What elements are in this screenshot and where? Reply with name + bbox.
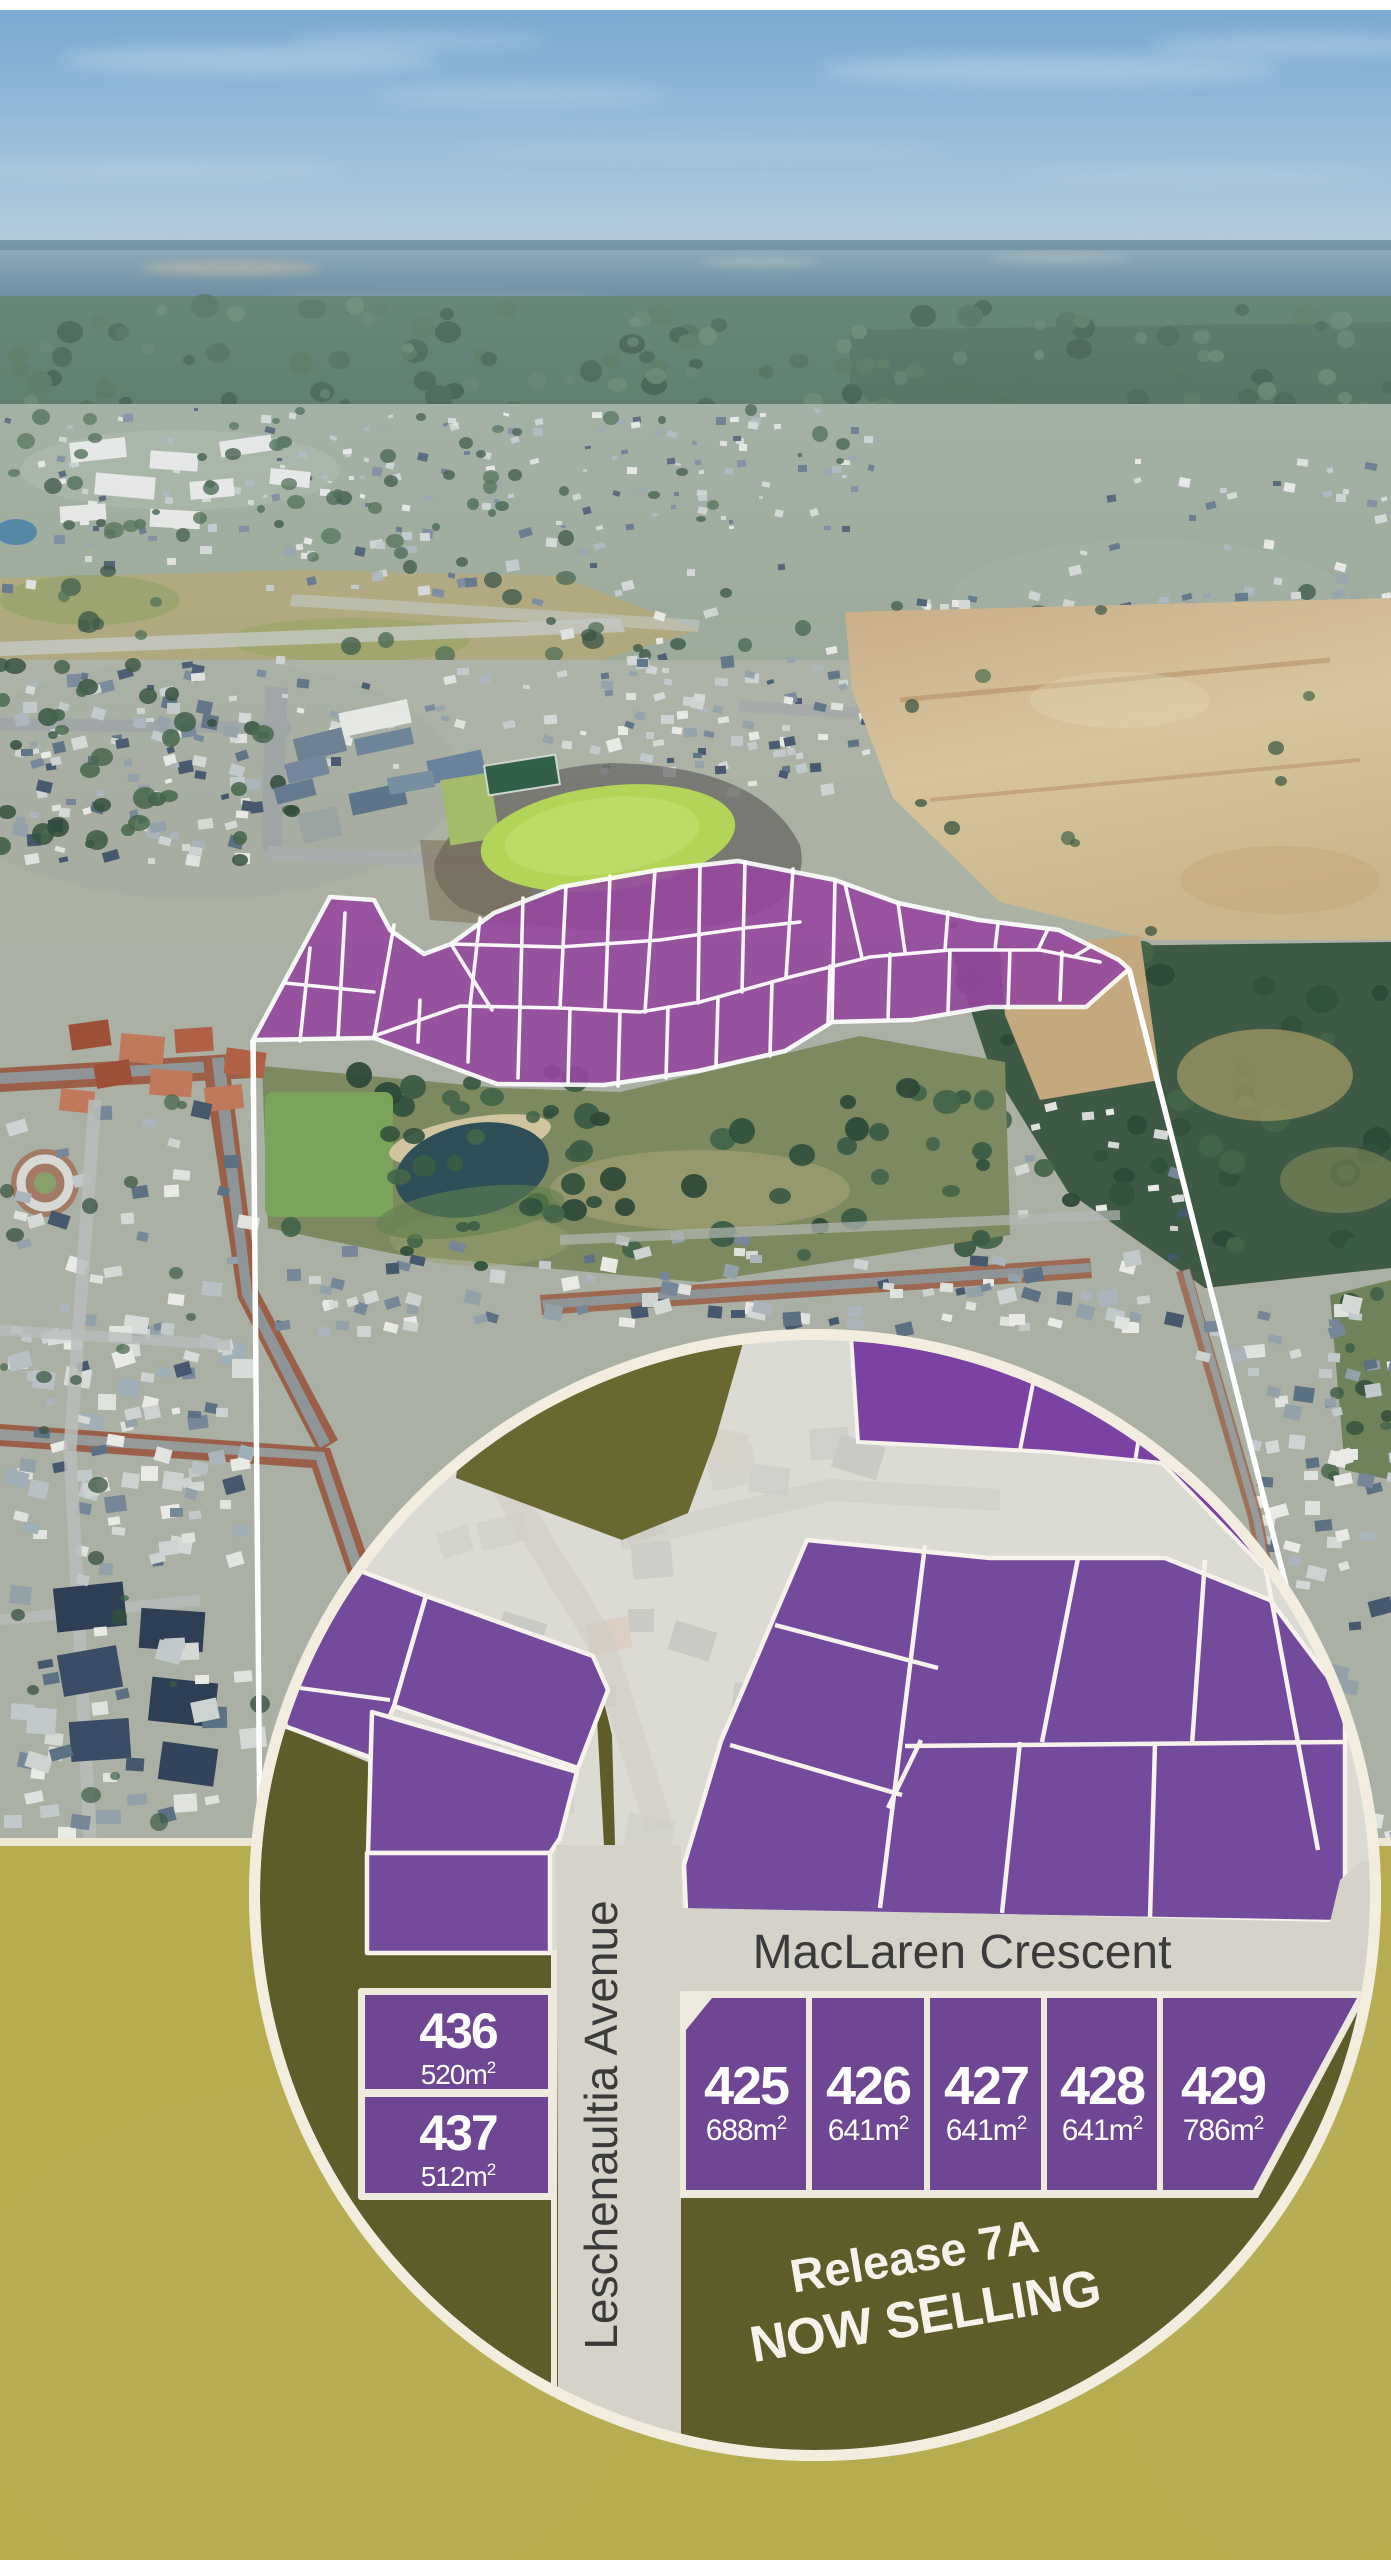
svg-text:437: 437 bbox=[419, 2105, 497, 2161]
svg-text:436: 436 bbox=[419, 2003, 497, 2059]
svg-text:427: 427 bbox=[944, 2056, 1028, 2116]
svg-text:520m2: 520m2 bbox=[421, 2058, 496, 2090]
svg-text:MacLaren Crescent: MacLaren Crescent bbox=[753, 1926, 1172, 1979]
svg-text:Leschenaultia Avenue: Leschenaultia Avenue bbox=[575, 1900, 627, 2349]
svg-text:426: 426 bbox=[826, 2056, 911, 2116]
svg-text:786m2: 786m2 bbox=[1183, 2113, 1264, 2147]
svg-text:641m2: 641m2 bbox=[946, 2113, 1027, 2147]
svg-text:429: 429 bbox=[1181, 2056, 1266, 2116]
svg-text:425: 425 bbox=[704, 2056, 789, 2116]
svg-text:641m2: 641m2 bbox=[828, 2113, 909, 2147]
svg-text:688m2: 688m2 bbox=[706, 2113, 787, 2147]
svg-text:512m2: 512m2 bbox=[421, 2160, 496, 2192]
svg-text:641m2: 641m2 bbox=[1062, 2113, 1143, 2147]
svg-text:428: 428 bbox=[1060, 2056, 1145, 2116]
